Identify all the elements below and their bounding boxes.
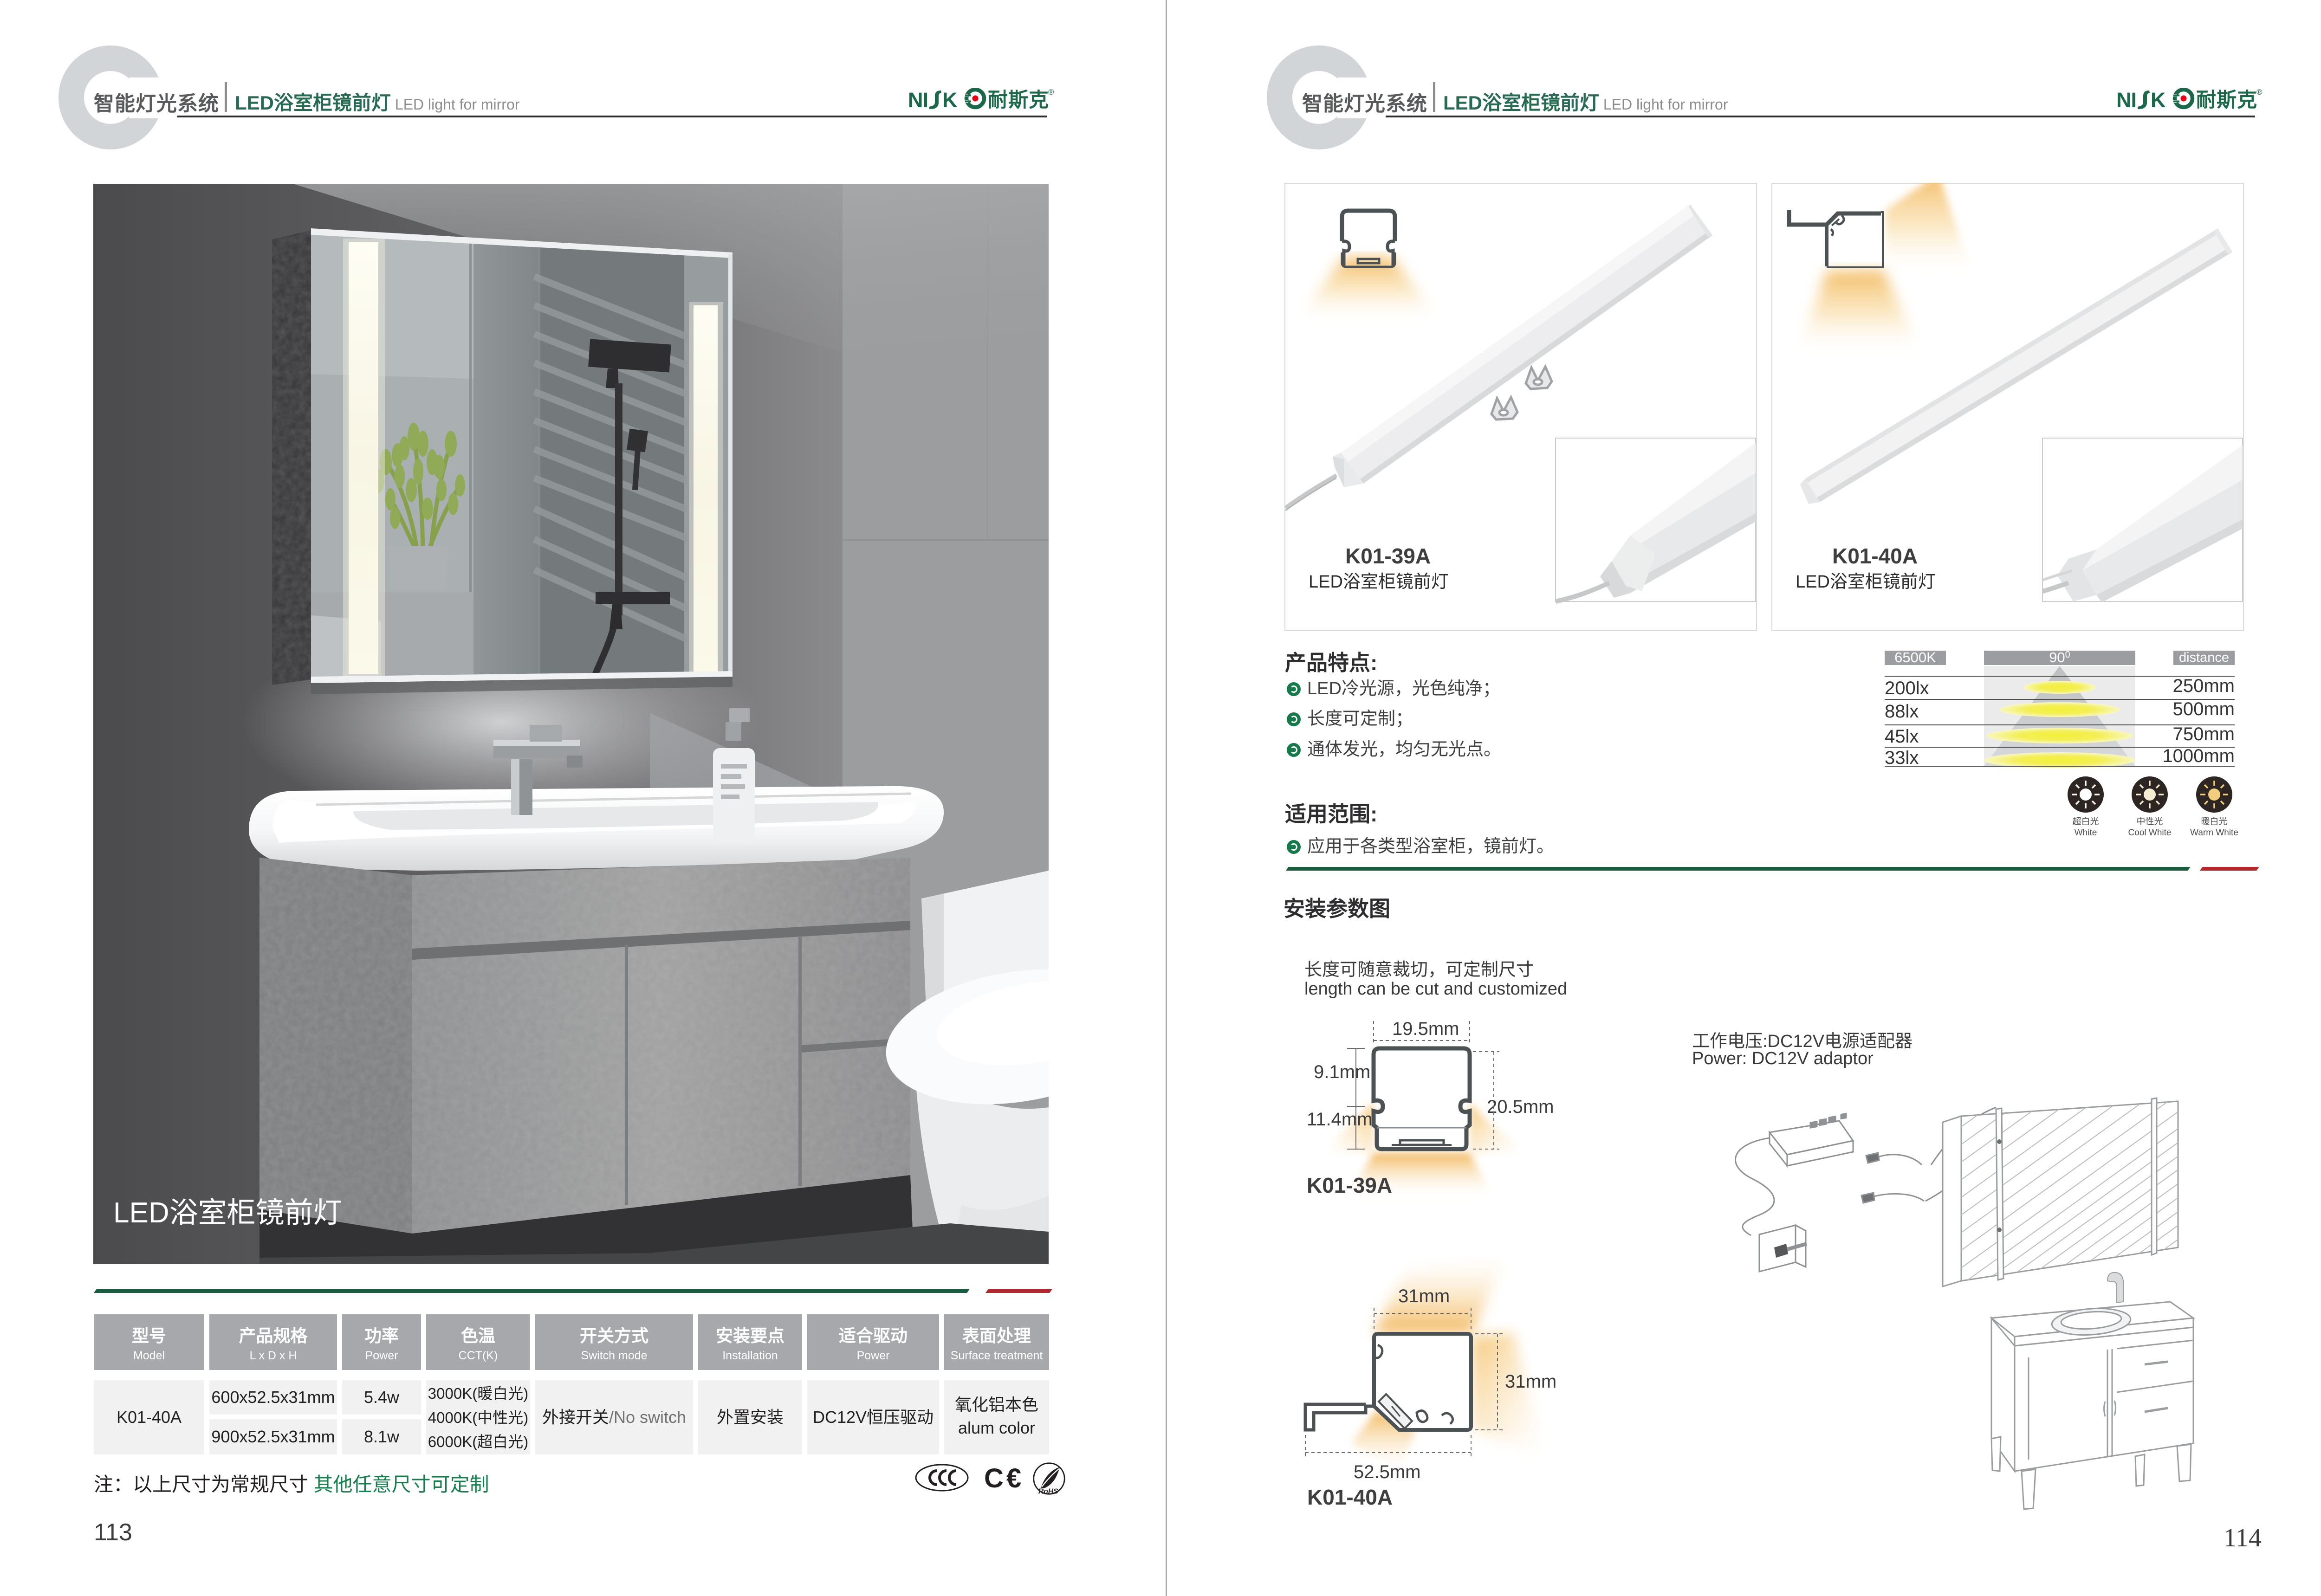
svg-text:250mm: 250mm [2173,676,2235,696]
svg-text:White: White [2075,828,2097,838]
svg-text:31mm: 31mm [1505,1371,1556,1392]
svg-text:750mm: 750mm [2173,724,2235,744]
svg-text:distance: distance [2179,650,2229,665]
svg-text:20.5mm: 20.5mm [1487,1097,1554,1117]
svg-text:K: K [2151,88,2166,110]
svg-text:K01-39A: K01-39A [1345,544,1431,568]
svg-text:K01-40A: K01-40A [1307,1485,1393,1509]
svg-text:88lx: 88lx [1885,701,1919,722]
svg-text:33lx: 33lx [1885,748,1919,768]
svg-text:LED浴室柜镜前灯: LED浴室柜镜前灯 [1796,572,1936,592]
svg-text:LED浴室柜镜前灯: LED浴室柜镜前灯 [1309,572,1449,592]
svg-text:NI: NI [2117,88,2136,110]
svg-text:31mm: 31mm [1398,1286,1450,1306]
svg-text:中性光: 中性光 [2136,816,2163,827]
svg-text:K01-39A: K01-39A [1307,1173,1392,1197]
svg-text:19.5mm: 19.5mm [1392,1019,1459,1039]
svg-text:45lx: 45lx [1885,726,1919,747]
svg-text:9.1mm: 9.1mm [1314,1062,1370,1082]
svg-text:1000mm: 1000mm [2162,746,2235,766]
svg-text:®: ® [2256,88,2263,97]
svg-text:500mm: 500mm [2173,699,2235,719]
svg-text:®: ® [1048,88,1054,97]
svg-text:52.5mm: 52.5mm [1354,1462,1421,1482]
svg-text:RoHS: RoHS [1038,1487,1058,1495]
svg-text:NI: NI [909,88,928,110]
svg-text:Warm White: Warm White [2190,828,2238,838]
svg-text:K01-40A: K01-40A [1832,544,1918,568]
svg-text:6500K: 6500K [1894,649,1936,666]
svg-text:LED浴室柜镜前灯: LED浴室柜镜前灯 [113,1197,342,1229]
svg-text:耐斯克: 耐斯克 [2196,89,2257,110]
svg-text:200lx: 200lx [1885,678,1929,698]
svg-text:K: K [942,88,958,110]
svg-text:11.4mm: 11.4mm [1307,1109,1373,1130]
svg-text:耐斯克: 耐斯克 [988,89,1049,110]
svg-text:超白光: 超白光 [2072,816,2099,827]
svg-text:Cool White: Cool White [2128,828,2172,838]
svg-text:暖白光: 暖白光 [2201,816,2227,827]
